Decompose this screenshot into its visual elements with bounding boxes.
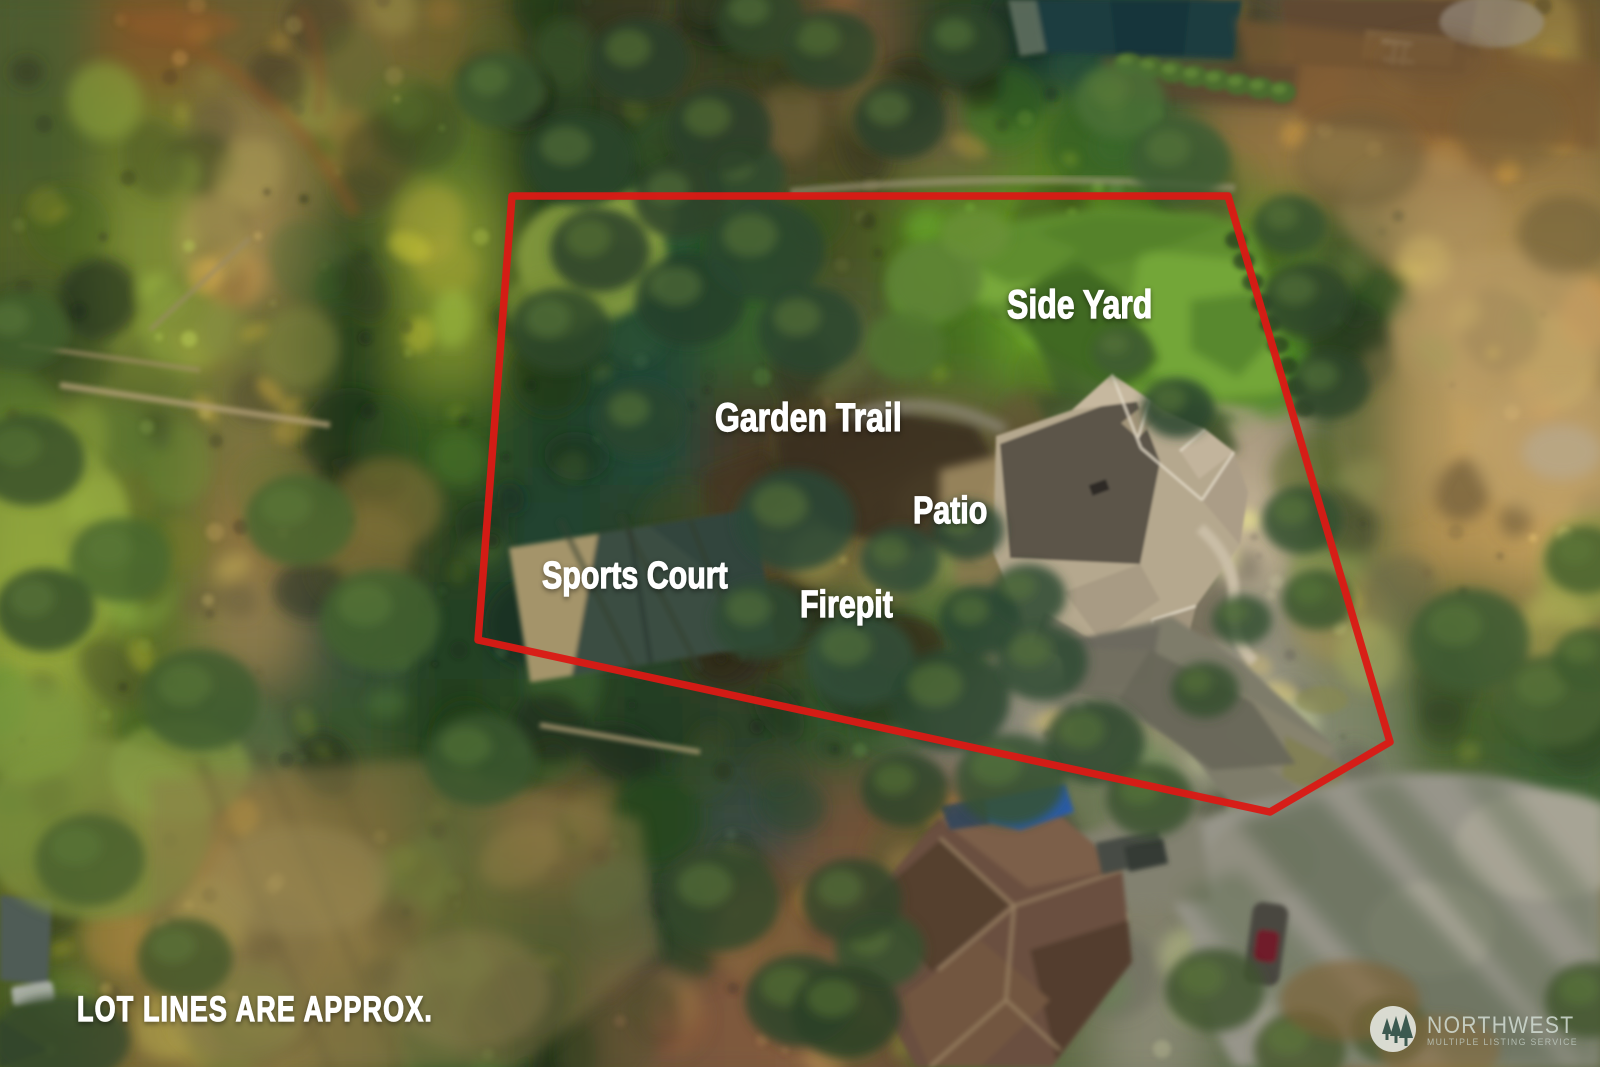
svg-text:Sports Court: Sports Court: [542, 555, 728, 597]
svg-text:Patio: Patio: [913, 490, 987, 532]
svg-text:MULTIPLE LISTING SERVICE: MULTIPLE LISTING SERVICE: [1427, 1037, 1578, 1047]
svg-text:NORTHWEST: NORTHWEST: [1427, 1012, 1575, 1039]
svg-text:LOT LINES ARE APPROX.: LOT LINES ARE APPROX.: [77, 990, 433, 1029]
svg-text:Garden Trail: Garden Trail: [715, 395, 902, 440]
svg-text:Side Yard: Side Yard: [1007, 282, 1152, 327]
svg-text:Firepit: Firepit: [800, 584, 893, 626]
